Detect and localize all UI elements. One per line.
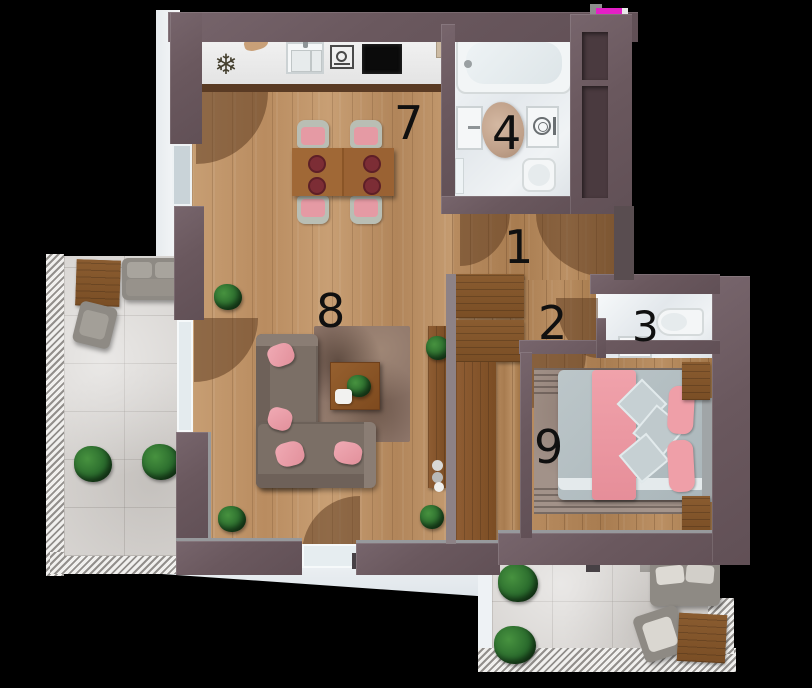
wall-wc-top (590, 274, 720, 294)
room-label-living: 8 (316, 288, 345, 334)
sink-basin (291, 50, 311, 72)
bush (498, 564, 538, 602)
room-label-kitchen: 7 (394, 100, 423, 146)
bathtub (456, 34, 572, 94)
utility-shaft (570, 14, 632, 214)
bed-pillow-pink (667, 439, 696, 492)
serving-tray (335, 389, 352, 404)
bathroom-vanity-sink (456, 106, 483, 150)
vanity-faucet (468, 126, 480, 129)
sink-basin (311, 50, 322, 72)
bathtub-basin (466, 42, 562, 84)
dining-chair (350, 120, 382, 148)
bush (142, 444, 180, 480)
wall-bathroom-bottom (441, 196, 577, 214)
bush (494, 626, 536, 664)
decor-bowl (432, 460, 443, 471)
shaft-recess (582, 86, 608, 198)
washer-drum-inner (538, 122, 548, 132)
oven-handle (334, 63, 350, 65)
wardrobe-shelf-top (456, 274, 524, 318)
kitchen-sink (286, 42, 324, 74)
render-artifact-white (622, 8, 628, 14)
floor-plan-canvas: ❄ (0, 0, 812, 688)
wall-wc-left-stub (596, 318, 606, 358)
wall-bottom-mid (356, 540, 500, 575)
outdoor-sofa-right (650, 560, 720, 606)
wall-hallway-right (614, 206, 634, 280)
room-label-corridor: 2 (538, 300, 567, 346)
chair-cushion (354, 199, 378, 217)
cooktop-panel (362, 44, 402, 74)
terrace-glass-door (177, 320, 193, 432)
shower-glass-door (455, 158, 464, 194)
bush (214, 284, 242, 310)
window-glass (172, 144, 192, 206)
bath-faucet (464, 60, 472, 68)
oven-dial (336, 51, 347, 62)
room-label-hallway: 1 (504, 224, 533, 270)
wall-bathroom-left (441, 24, 455, 214)
plate (308, 155, 326, 173)
sofa-armrest (364, 422, 376, 488)
dining-chair (350, 196, 382, 224)
wardrobe-shelf-mid (456, 320, 524, 362)
toilet-bowl (528, 164, 550, 186)
wall-left-mid (174, 206, 204, 320)
plate (363, 155, 381, 173)
plate (308, 177, 326, 195)
chair-cushion (301, 199, 325, 217)
wall-bedroom-left (520, 352, 532, 538)
washing-machine-icon (526, 106, 559, 148)
oven-icon (330, 45, 354, 69)
kitchen-counter-edge (200, 84, 446, 92)
washer-panel (553, 117, 556, 135)
toilet (522, 158, 556, 192)
dining-chair (297, 196, 329, 224)
wall-left-upper (170, 12, 202, 144)
dining-table (292, 148, 394, 196)
room-label-bathroom: 4 (492, 110, 521, 156)
outdoor-table-right (677, 613, 727, 663)
outdoor-armchair-seat (78, 309, 110, 341)
wall-top (168, 12, 638, 42)
bush (218, 506, 246, 532)
wall-left-lower (176, 432, 211, 542)
sofa-backrest (256, 474, 376, 488)
wardrobe-tall-cabinet (456, 362, 496, 544)
decor-bowl (434, 482, 444, 492)
outdoor-table-left (75, 259, 121, 307)
wall-right-thick (712, 276, 750, 562)
room-label-wc: 3 (632, 306, 659, 348)
nightstand (682, 496, 710, 534)
nightstand (682, 362, 710, 400)
dining-chair (297, 120, 329, 148)
shaft-recess (582, 32, 608, 80)
fridge-snowflake-icon: ❄ (206, 44, 246, 84)
wc-toilet (656, 308, 704, 336)
chair-cushion (354, 127, 378, 145)
wall-living-corridor (446, 274, 456, 544)
room-label-bedroom: 9 (534, 424, 563, 470)
chair-cushion (301, 127, 325, 145)
terrace-railing-left (46, 254, 64, 576)
outdoor-sofa-cushion (685, 564, 714, 584)
plate (363, 177, 381, 195)
outdoor-sofa-cushion (655, 565, 685, 586)
floor-corridor-strip (494, 342, 520, 542)
wall-bottom-left (176, 538, 302, 575)
bush (420, 505, 444, 529)
outdoor-chair-seat (641, 615, 679, 653)
balcony-glass-door (302, 544, 358, 568)
bush (74, 446, 112, 482)
wc-toilet-bowl (661, 313, 687, 331)
coffee-table (330, 362, 380, 410)
outdoor-sofa-cushion (127, 262, 152, 278)
washer-drum (533, 117, 551, 135)
